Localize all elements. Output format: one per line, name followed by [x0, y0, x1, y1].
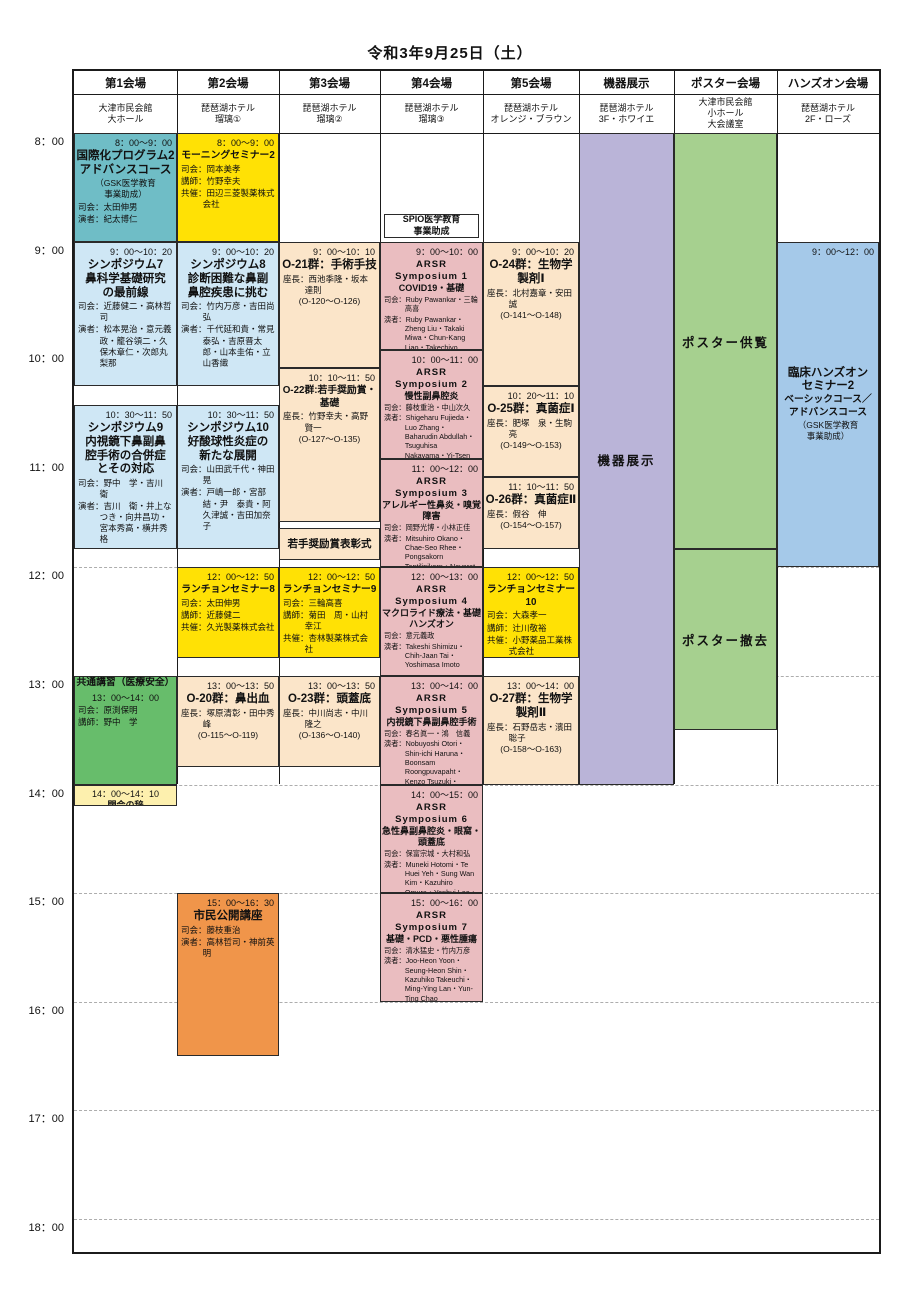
- session-o-23-skull-base: 13：00～13：50O-23群：頭蓋底座長：中川尚志・中川隆之(O-136～O…: [279, 676, 380, 767]
- session-line: 10：00～11：00: [381, 351, 482, 367]
- session-line: ポスター供覧: [675, 332, 776, 351]
- session-line: 診断困難な鼻副: [178, 273, 278, 287]
- session-line: シンポジウム7: [75, 259, 176, 273]
- session-arsr-symposium-4: 12：00～13：00ARSRSymposium 4マクロライド療法・基礎ハンズ…: [380, 567, 483, 676]
- session-line: ARSR: [381, 584, 482, 596]
- venue-header-handson: ハンズオン会場琵琶湖ホテル 2F・ローズ: [777, 71, 879, 133]
- session-line: マクロライド療法・基礎ハンズオン: [381, 608, 482, 631]
- session-morning-seminar-2: 8：00～9：00モーニングセミナー2司会：岡本美孝講師：竹野幸夫共催：田辺三菱…: [177, 133, 279, 242]
- session-arsr-symposium-7: 15：00～16：00ARSRSymposium 7基礎・PCD・悪性腫瘍司会：…: [380, 893, 483, 1002]
- session-line: ポスター撤去: [675, 630, 776, 649]
- venue-name: 機器展示: [579, 71, 674, 94]
- time-label: 9：00: [6, 242, 64, 258]
- session-line: 司会：春名眞一・鴻 信義: [384, 729, 479, 738]
- session-line: 演者：Muneki Hotomi・Te Huei Yeh・Sung Wan Ki…: [384, 860, 479, 893]
- venue-hall: 琵琶湖ホテル 3F・ホワイエ: [579, 94, 674, 133]
- session-line: 10：10～11：50: [280, 369, 379, 385]
- session-line: 13：00～13：50: [280, 677, 379, 693]
- session-line: O-21群：手術手技: [280, 259, 379, 273]
- session-line: Symposium 3: [381, 488, 482, 500]
- session-line: (O-127～O-135): [280, 434, 379, 445]
- time-label: 16：00: [6, 1002, 64, 1018]
- session-line: モーニングセミナー2: [178, 150, 278, 163]
- session-line: 12：00～12：50: [178, 568, 278, 584]
- time-label: 8：00: [6, 133, 64, 149]
- session-line: O-22群:若手奨励賞・: [280, 385, 379, 398]
- session-line: 新たな展開: [178, 450, 278, 464]
- session-line: 鼻腔疾患に挑む: [178, 287, 278, 301]
- session-line: 15：00～16：30: [178, 894, 278, 910]
- session-line: 共催：杏林製薬株式会社: [283, 633, 376, 655]
- session-line: 司会：藤枝重治: [181, 925, 275, 936]
- session-closing-remarks: 14：00～14：10閉会の辞: [74, 785, 177, 806]
- session-line: 司会：保富宗城・大村和弘: [384, 849, 479, 858]
- session-line: 演者：Ruby Pawankar・Zheng Liu・Takaki Miwa・C…: [384, 315, 479, 350]
- venue-name: 第3会場: [279, 71, 380, 94]
- venue-header-1: 第1会場大津市民会館 大ホール: [74, 71, 177, 133]
- session-line: 好酸球性炎症の: [178, 436, 278, 450]
- session-line: 演者：松本晃治・意元義政・籠谷領二・久保木章仁・次郎丸梨那: [78, 324, 173, 368]
- session-line: 司会：原渕保明: [78, 705, 173, 716]
- session-o-26-mycosis-2: 11：10～11：50O-26群：真菌症Ⅱ座長：假谷 伸(O-154～O-157…: [483, 477, 579, 549]
- session-o-25-mycosis-1: 10：20～11：10O-25群：真菌症Ⅰ座長：肥塚 泉・生駒 亮(O-149～…: [483, 386, 579, 477]
- session-line: 9：00～10：10: [280, 243, 379, 259]
- venue-hall: 琵琶湖ホテル オレンジ・ブラウン: [483, 94, 579, 133]
- session-line: 司会：三輪高喜: [283, 598, 376, 609]
- session-line: 9：00～10：20: [178, 243, 278, 259]
- session-line: ARSR: [381, 476, 482, 488]
- session-arsr-symposium-6: 14：00～15：00ARSRSymposium 6急性鼻副鼻腔炎・眼窩・頭蓋底…: [380, 785, 483, 893]
- session-line: 座長：竹野幸夫・高野賢一: [283, 411, 376, 433]
- session-line: 臨床ハンズオン: [778, 367, 878, 381]
- session-line: シンポジウム9: [75, 422, 176, 436]
- session-line: (O-154～O-157): [484, 520, 578, 531]
- time-label: 14：00: [6, 785, 64, 801]
- session-line: アドバンスコース: [778, 407, 878, 420]
- venue-header-5: 第5会場琵琶湖ホテル オレンジ・ブラウン: [483, 71, 579, 133]
- session-line: 演者：高林哲司・神前英明: [181, 937, 275, 959]
- session-line: シンポジウム10: [178, 422, 278, 436]
- session-line: 13：00～14：00: [75, 690, 176, 704]
- session-line: 若手奨励賞表彰式: [280, 538, 379, 551]
- venue-hall: 琵琶湖ホテル 2F・ローズ: [777, 94, 879, 133]
- session-line: （GSK医学教育: [778, 420, 878, 431]
- session-line: 司会：清水猛史・竹内万彦: [384, 946, 479, 955]
- session-line: ランチョンセミナー8: [178, 584, 278, 597]
- session-line: Symposium 1: [381, 271, 482, 283]
- session-arsr-symposium-2: 10：00～11：00ARSRSymposium 2慢性副鼻腔炎司会：藤枝重治・…: [380, 350, 483, 459]
- page-title: 令和3年9月25日（土）: [0, 42, 900, 63]
- session-line: 12：00～12：50: [484, 568, 578, 584]
- session-line: 10：30～11：50: [75, 406, 176, 422]
- session-common-lecture-medical-safety: 共通講習（医療安全）13：00～14：00司会：原渕保明講師：野中 学: [74, 676, 177, 785]
- session-line: 10：30～11：50: [178, 406, 278, 422]
- session-line: 演者：紀太博仁: [78, 214, 173, 225]
- session-line: 13：00～14：00: [484, 677, 578, 693]
- session-line: O-23群：頭蓋底: [280, 693, 379, 707]
- session-line: Symposium 4: [381, 596, 482, 608]
- session-line: 共催：田辺三菱製薬株式会社: [181, 188, 275, 210]
- session-line: 腔手術の合併症: [75, 450, 176, 464]
- session-line: (O-141～O-148): [484, 310, 578, 321]
- session-line: 製剤Ⅱ: [484, 707, 578, 721]
- session-line: (O-158～O-163): [484, 744, 578, 755]
- session-o-22-young-award-basic: 10：10～11：50O-22群:若手奨励賞・基礎座長：竹野幸夫・高野賢一(O-…: [279, 368, 380, 522]
- session-line: 司会：大森孝一: [487, 610, 575, 621]
- session-line: 講師：菊田 周・山村幸江: [283, 610, 376, 632]
- session-line: 司会：岡野光博・小林正佳: [384, 523, 479, 532]
- session-line: 9：00～10：20: [75, 243, 176, 259]
- session-line: 座長：塚原清彰・田中秀峰: [181, 708, 275, 730]
- venue-hall: 大津市民会館 小ホール 大会議室: [674, 94, 777, 133]
- session-line: 演者：戸嶋一郎・宮部 結・尹 泰貴・阿久津誠・吉田加奈子: [181, 487, 275, 531]
- session-line: 司会：山田武千代・神田 晃: [181, 464, 275, 486]
- time-label: 15：00: [6, 893, 64, 909]
- session-line: 鼻科学基礎研究: [75, 273, 176, 287]
- session-line: 司会：太田伸男: [78, 202, 173, 213]
- session-line: (O-149～O-153): [484, 440, 578, 451]
- session-line: O-24群：生物学: [484, 259, 578, 273]
- session-line: とその対応: [75, 463, 176, 477]
- program-page: 令和3年9月25日（土） 第1会場大津市民会館 大ホール 第2会場琵琶湖ホテル …: [0, 0, 900, 1300]
- session-luncheon-seminar-10: 12：00～12：50ランチョンセミナー10司会：大森孝一講師：辻川敬裕共催：小…: [483, 567, 579, 658]
- session-line: 事業助成）: [75, 189, 176, 200]
- session-luncheon-seminar-8: 12：00～12：50ランチョンセミナー8司会：太田伸男講師：近藤健二共催：久光…: [177, 567, 279, 658]
- session-line: セミナー2: [778, 380, 878, 394]
- session-line: 14：00～14：10: [75, 786, 176, 800]
- session-o-21-surgical-technique: 9：00～10：10O-21群：手術手技座長：西池季隆・坂本達則(O-120～O…: [279, 242, 380, 368]
- session-line: アレルギー性鼻炎・嗅覚障害: [381, 500, 482, 523]
- venue-hall: 琵琶湖ホテル 瑠璃①: [177, 94, 279, 133]
- session-poster-viewing: ポスター供覧: [674, 133, 777, 549]
- session-line: SPIO医学教育: [385, 214, 478, 226]
- session-line: Symposium 2: [381, 379, 482, 391]
- session-line: ARSR: [381, 693, 482, 705]
- time-label: 12：00: [6, 567, 64, 583]
- session-o-27-biologics-2: 13：00～14：00O-27群：生物学製剤Ⅱ座長：石野岳志・濱田聡子(O-15…: [483, 676, 579, 785]
- time-label: 13：00: [6, 676, 64, 692]
- session-equipment-exhibit: 機器展示: [579, 133, 674, 785]
- session-line: 基礎・PCD・悪性腫瘍: [381, 934, 482, 945]
- session-line: 市民公開講座: [178, 910, 278, 924]
- session-line: ランチョンセミナー9: [280, 584, 379, 597]
- session-symposium-9: 10：30～11：50シンポジウム9内視鏡下鼻副鼻腔手術の合併症とその対応司会：…: [74, 405, 177, 549]
- session-arsr-symposium-5: 13：00～14：00ARSRSymposium 5内視鏡下鼻副鼻腔手術司会：春…: [380, 676, 483, 785]
- session-line: ランチョンセミナー10: [484, 584, 578, 609]
- hour-gridline: [74, 1219, 879, 1220]
- session-line: 8：00～9：00: [75, 134, 176, 150]
- session-line: 演者：Mitsuhiro Okano・Chae-Seo Rhee・Pongsak…: [384, 534, 479, 567]
- session-line: 慢性副鼻腔炎: [381, 391, 482, 402]
- session-line: 8：00～9：00: [178, 134, 278, 150]
- venue-name: 第1会場: [74, 71, 177, 94]
- header-divider: [74, 94, 879, 95]
- session-line: 講師：辻川敬裕: [487, 623, 575, 634]
- venue-hall: 琵琶湖ホテル 瑠璃③: [380, 94, 483, 133]
- session-line: 共通講習（医療安全）: [75, 677, 176, 690]
- session-line: の最前線: [75, 287, 176, 301]
- time-label: 11：00: [6, 459, 64, 475]
- session-line: 11：00～12：00: [381, 460, 482, 476]
- session-o-24-biologics-1: 9：00～10：20O-24群：生物学製剤Ⅰ座長：北村嘉章・安田 誠(O-141…: [483, 242, 579, 386]
- venue-header-3: 第3会場琵琶湖ホテル 瑠璃②: [279, 71, 380, 133]
- session-line: 内視鏡下鼻副鼻腔手術: [381, 717, 482, 728]
- session-spio-note: SPIO医学教育事業助成: [384, 214, 479, 238]
- session-line: 演者：千代延和貴・常見泰弘・吉原晋太郎・山本圭佑・立山香織: [181, 324, 275, 368]
- session-line: Symposium 7: [381, 922, 482, 934]
- session-line: 講師：近藤健二: [181, 610, 275, 621]
- session-line: 国際化プログラム2: [75, 150, 176, 164]
- session-arsr-symposium-1: 9：00～10：00ARSRSymposium 1COVID19・基礎司会：Ru…: [380, 242, 483, 350]
- session-line: 司会：野中 学・吉川 衛: [78, 478, 173, 500]
- session-arsr-symposium-3: 11：00～12：00ARSRSymposium 3アレルギー性鼻炎・嗅覚障害司…: [380, 459, 483, 567]
- session-symposium-10: 10：30～11：50シンポジウム10好酸球性炎症の新たな展開司会：山田武千代・…: [177, 405, 279, 549]
- session-line: 基礎: [280, 398, 379, 411]
- session-line: COVID19・基礎: [381, 283, 482, 294]
- session-line: 機器展示: [580, 450, 673, 469]
- venue-name: 第2会場: [177, 71, 279, 94]
- session-line: 座長：西池季隆・坂本達則: [283, 274, 376, 296]
- session-line: 10：20～11：10: [484, 387, 578, 403]
- session-public-lecture: 15：00～16：30市民公開講座司会：藤枝重治演者：高林哲司・神前英明: [177, 893, 279, 1056]
- session-line: ARSR: [381, 802, 482, 814]
- venue-header-2: 第2会場琵琶湖ホテル 瑠璃①: [177, 71, 279, 133]
- session-line: ARSR: [381, 367, 482, 379]
- session-line: 司会：竹内万彦・吉田尚弘: [181, 301, 275, 323]
- session-line: 事業助成: [385, 226, 478, 238]
- session-line: アドバンスコース: [75, 164, 176, 178]
- session-line: 演者：吉川 衛・井上なつき・向井昌功・宮本秀高・横井秀格: [78, 501, 173, 545]
- session-line: 座長：假谷 伸: [487, 509, 575, 520]
- session-line: （GSK医学教育: [75, 178, 176, 189]
- session-line: 演者：Shigeharu Fujieda・Luo Zhang・Baharudin…: [384, 413, 479, 459]
- session-line: 13：00～13：50: [178, 677, 278, 693]
- venue-name: 第5会場: [483, 71, 579, 94]
- session-line: 9：00～10：20: [484, 243, 578, 259]
- timetable-grid: 第1会場大津市民会館 大ホール 第2会場琵琶湖ホテル 瑠璃① 第3会場琵琶湖ホテ…: [74, 71, 879, 1252]
- session-line: O-20群：鼻出血: [178, 693, 278, 707]
- session-poster-removal: ポスター撤去: [674, 549, 777, 730]
- session-line: 閉会の辞: [75, 800, 176, 806]
- session-young-award-ceremony: 若手奨励賞表彰式: [279, 528, 380, 560]
- session-clinical-handson-seminar-2: 9：00～12：00臨床ハンズオンセミナー2ベーシックコース／アドバンスコース（…: [777, 242, 879, 567]
- session-line: 事業助成）: [778, 431, 878, 442]
- venue-name: ポスター会場: [674, 71, 777, 94]
- venue-hall: 大津市民会館 大ホール: [74, 94, 177, 133]
- session-line: O-27群：生物学: [484, 693, 578, 707]
- session-line: 共催：小野薬品工業株式会社: [487, 635, 575, 657]
- session-symposium-7: 9：00～10：20シンポジウム7鼻科学基礎研究の最前線司会：近藤健二・高林哲司…: [74, 242, 177, 386]
- session-line: 講師：野中 学: [78, 717, 173, 728]
- session-line: 9：00～10：00: [381, 243, 482, 259]
- session-line: O-26群：真菌症Ⅱ: [484, 494, 578, 508]
- session-line: ベーシックコース／: [778, 394, 878, 407]
- session-line: 座長：中川尚志・中川隆之: [283, 708, 376, 730]
- session-line: 14：00～15：00: [381, 786, 482, 802]
- venue-hall: 琵琶湖ホテル 瑠璃②: [279, 94, 380, 133]
- session-luncheon-seminar-9: 12：00～12：50ランチョンセミナー9司会：三輪高喜講師：菊田 周・山村幸江…: [279, 567, 380, 658]
- venue-header-poster: ポスター会場大津市民会館 小ホール 大会議室: [674, 71, 777, 133]
- session-line: 司会：Ruby Pawankar・三輪 高喜: [384, 295, 479, 314]
- session-line: 司会：意元義政: [384, 631, 479, 640]
- session-line: 急性鼻副鼻腔炎・眼窩・頭蓋底: [381, 826, 482, 849]
- session-line: ARSR: [381, 259, 482, 271]
- session-line: O-25群：真菌症Ⅰ: [484, 403, 578, 417]
- session-line: 11：10～11：50: [484, 478, 578, 494]
- session-line: (O-136～O-140): [280, 730, 379, 741]
- session-o-20-epistaxis: 13：00～13：50O-20群：鼻出血座長：塚原清彰・田中秀峰(O-115～O…: [177, 676, 279, 767]
- session-line: 共催：久光製薬株式会社: [181, 622, 275, 633]
- venue-header-4: 第4会場琵琶湖ホテル 瑠璃③: [380, 71, 483, 133]
- session-line: Symposium 6: [381, 814, 482, 826]
- session-line: シンポジウム8: [178, 259, 278, 273]
- session-line: 司会：近藤健二・高林哲司: [78, 301, 173, 323]
- time-label: 18：00: [6, 1219, 64, 1235]
- timetable-frame: 第1会場大津市民会館 大ホール 第2会場琵琶湖ホテル 瑠璃① 第3会場琵琶湖ホテ…: [72, 69, 881, 1254]
- session-line: 座長：肥塚 泉・生駒 亮: [487, 418, 575, 440]
- session-line: Symposium 5: [381, 705, 482, 717]
- venue-header-exhibit: 機器展示琵琶湖ホテル 3F・ホワイエ: [579, 71, 674, 133]
- session-line: 司会：岡本美孝: [181, 164, 275, 175]
- session-line: 製剤Ⅰ: [484, 273, 578, 287]
- session-line: 演者：Nobuyoshi Otori・Shin-ichi Haruna・Boon…: [384, 739, 479, 785]
- time-label: 17：00: [6, 1110, 64, 1126]
- session-line: 座長：北村嘉章・安田 誠: [487, 288, 575, 310]
- session-line: 内視鏡下鼻副鼻: [75, 436, 176, 450]
- session-line: ARSR: [381, 910, 482, 922]
- session-line: 13：00～14：00: [381, 677, 482, 693]
- hour-gridline: [74, 1110, 879, 1111]
- session-line: 演者：Takeshi Shimizu・Chih-Jaan Tai・Yoshima…: [384, 642, 479, 670]
- session-line: 司会：太田伸男: [181, 598, 275, 609]
- session-intl-program-2: 8：00～9：00国際化プログラム2アドバンスコース（GSK医学教育事業助成）司…: [74, 133, 177, 242]
- session-line: 9：00～12：00: [812, 245, 874, 258]
- time-label: 10：00: [6, 350, 64, 366]
- session-line: (O-115～O-119): [178, 730, 278, 741]
- session-line: 15：00～16：00: [381, 894, 482, 910]
- session-line: 司会：藤枝重治・中山次久: [384, 403, 479, 412]
- venue-name: 第4会場: [380, 71, 483, 94]
- session-line: 演者：Joo-Heon Yoon・Seung-Heon Shin・Kazuhik…: [384, 956, 479, 1002]
- session-line: 12：00～13：00: [381, 568, 482, 584]
- venue-name: ハンズオン会場: [777, 71, 879, 94]
- session-line: 12：00～12：50: [280, 568, 379, 584]
- session-symposium-8: 9：00～10：20シンポジウム8診断困難な鼻副鼻腔疾患に挑む司会：竹内万彦・吉…: [177, 242, 279, 386]
- session-line: 講師：竹野幸夫: [181, 176, 275, 187]
- session-line: (O-120～O-126): [280, 296, 379, 307]
- session-line: 座長：石野岳志・濱田聡子: [487, 722, 575, 744]
